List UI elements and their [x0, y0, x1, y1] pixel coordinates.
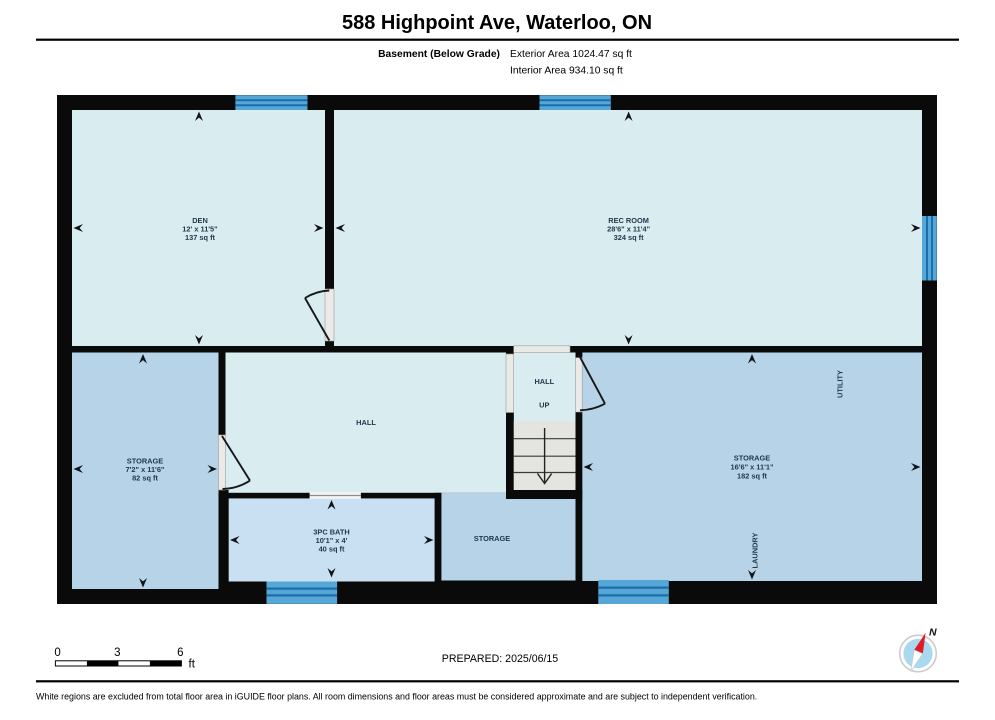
svg-text:HALL: HALL — [534, 377, 554, 386]
svg-text:N: N — [929, 627, 937, 639]
svg-text:588 Highpoint Ave, Waterloo, O: 588 Highpoint Ave, Waterloo, ON — [342, 12, 652, 34]
svg-text:Basement (Below Grade): Basement (Below Grade) — [378, 49, 500, 60]
svg-text:16'6" x 11'1": 16'6" x 11'1" — [731, 463, 774, 472]
svg-text:6: 6 — [177, 647, 183, 659]
svg-text:Exterior Area 1024.47 sq ft: Exterior Area 1024.47 sq ft — [510, 49, 632, 60]
svg-text:3: 3 — [114, 647, 120, 659]
svg-text:137 sq ft: 137 sq ft — [185, 233, 216, 242]
svg-text:LAUNDRY: LAUNDRY — [750, 533, 759, 569]
svg-text:White regions are excluded fro: White regions are excluded from total fl… — [36, 692, 757, 702]
svg-text:PREPARED: 2025/06/15: PREPARED: 2025/06/15 — [442, 653, 559, 665]
svg-text:UP: UP — [539, 401, 549, 410]
svg-text:Interior Area 934.10 sq ft: Interior Area 934.10 sq ft — [510, 66, 623, 77]
svg-text:UTILITY: UTILITY — [836, 370, 845, 398]
svg-text:324 sq ft: 324 sq ft — [614, 233, 645, 242]
svg-text:ft: ft — [189, 659, 196, 671]
svg-text:STORAGE: STORAGE — [474, 534, 510, 543]
svg-text:82 sq ft: 82 sq ft — [132, 474, 158, 483]
svg-text:182 sq ft: 182 sq ft — [737, 472, 768, 481]
svg-text:STORAGE: STORAGE — [734, 454, 770, 463]
svg-text:40 sq ft: 40 sq ft — [319, 545, 345, 554]
svg-text:HALL: HALL — [356, 418, 376, 427]
svg-text:0: 0 — [54, 647, 60, 659]
